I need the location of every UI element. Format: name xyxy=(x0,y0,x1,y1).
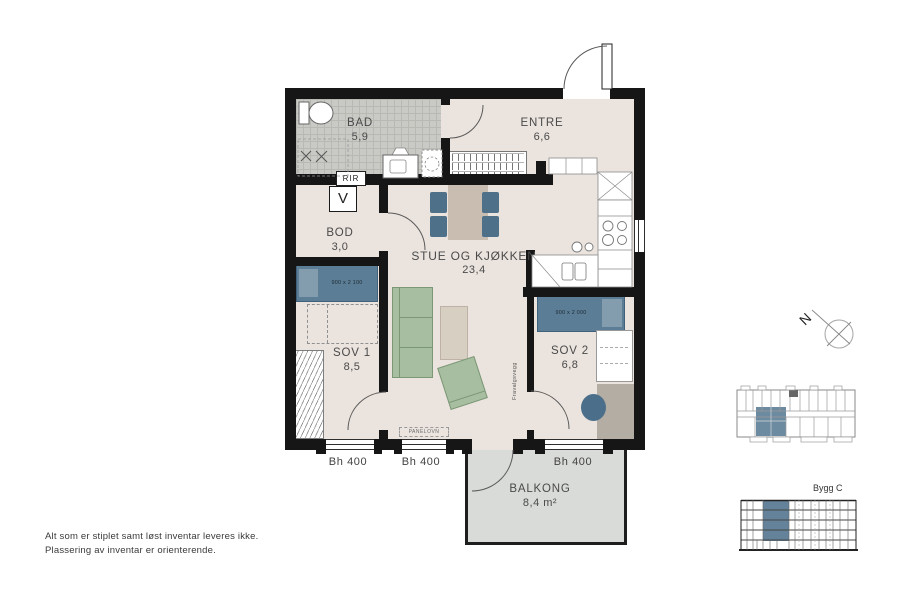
plan-details-overlay: N Bygg C xyxy=(0,0,900,600)
site-plan-balcony xyxy=(750,437,767,442)
site-plan-balcony xyxy=(773,437,790,442)
kitchen-counter-top xyxy=(549,158,597,174)
washing-machine-icon xyxy=(422,150,442,177)
cabinet-front-icon xyxy=(562,263,573,280)
kitchen-counter-right xyxy=(598,200,632,287)
door-arc-bad xyxy=(450,105,483,138)
site-plan-balcony xyxy=(786,386,795,390)
vanity-icon xyxy=(383,155,418,178)
elevation-columns-bottom xyxy=(757,540,777,550)
sink-basin-icon xyxy=(585,243,593,251)
site-plan-balcony xyxy=(834,386,842,390)
site-plan-balcony xyxy=(741,386,750,390)
shower-valve-icon xyxy=(316,151,327,162)
elevation-columns-dashed xyxy=(799,500,830,550)
elevation-floor-lines xyxy=(741,510,856,540)
entrance-door-leaf xyxy=(602,44,612,89)
cabinet-front-icon xyxy=(575,263,586,280)
compass-needle xyxy=(812,310,851,346)
door-arc-entrance xyxy=(564,46,607,89)
site-plan-balcony xyxy=(834,437,852,442)
elevation-edges xyxy=(741,500,856,550)
floor-plan-canvas: 900 x 2 100 900 x 2 000 PANELOVN xyxy=(0,0,900,600)
door-arc-bod xyxy=(388,213,425,250)
site-plan-balcony xyxy=(801,437,827,442)
shower-valve-icon xyxy=(301,151,311,161)
door-arc-sov2 xyxy=(531,391,569,429)
door-arc-sov1 xyxy=(348,392,386,430)
building-elevation xyxy=(739,500,858,550)
north-label: N xyxy=(796,310,814,329)
site-plan-stair xyxy=(789,390,798,397)
elevation-highlighted-unit xyxy=(763,501,789,541)
toilet-tank-icon xyxy=(299,102,309,124)
sink-basin-icon xyxy=(572,242,582,252)
elevation-columns xyxy=(747,500,848,550)
site-plan-balcony xyxy=(758,386,766,390)
toilet-icon xyxy=(309,102,333,124)
door-arc-balcony xyxy=(472,450,513,491)
site-plan-balcony xyxy=(810,386,818,390)
mirror-cabinet-icon xyxy=(392,148,409,155)
site-plan-key xyxy=(737,386,855,442)
building-label: Bygg C xyxy=(813,483,843,493)
